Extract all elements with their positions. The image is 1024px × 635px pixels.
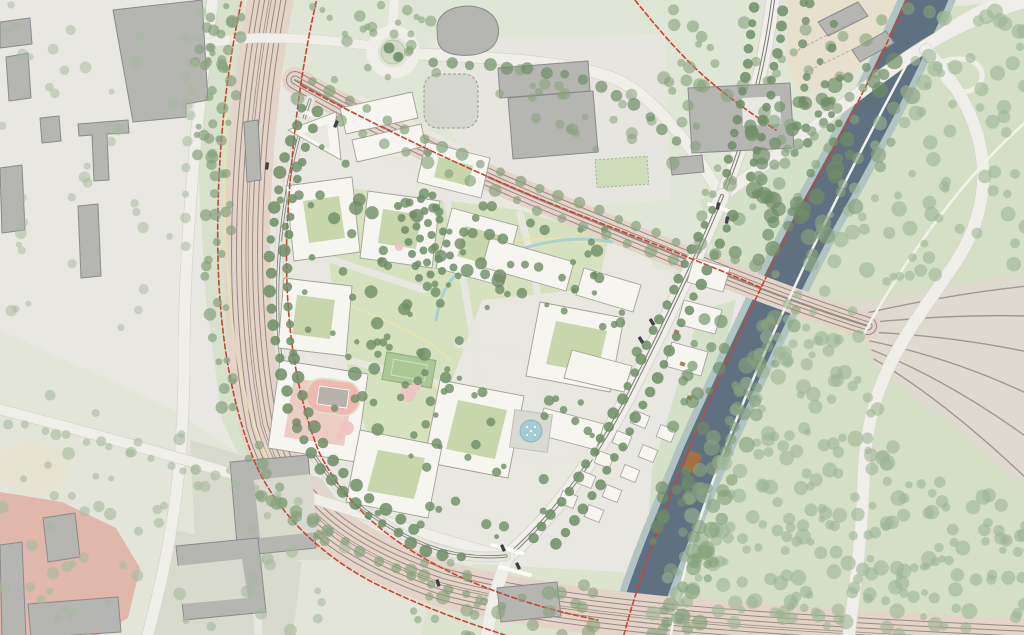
- trees-south-center: [554, 586, 567, 599]
- trees-west-strip: [210, 189, 219, 198]
- trees-south-center: [431, 615, 439, 623]
- tree-grid-park: [417, 195, 425, 203]
- trees-arc-east: [292, 371, 305, 384]
- trees-park-south: [994, 532, 1007, 545]
- trees-top-east: [767, 115, 780, 128]
- trees-top-east: [690, 141, 701, 152]
- trees-boulevard-north-1: [749, 2, 760, 13]
- trees-park-south: [781, 546, 790, 555]
- trees-allee-plaza: [830, 20, 838, 28]
- trees-park-riveredge: [836, 187, 846, 197]
- trees-park-north: [965, 53, 975, 63]
- trees-west-road: [180, 213, 191, 224]
- trees-arc-west: [264, 251, 275, 262]
- trees-central-park: [539, 225, 549, 235]
- trees-west-strip: [210, 171, 221, 182]
- trees-arc-west: [268, 201, 281, 214]
- trees-bridge-road: [859, 84, 868, 93]
- trees-park-south: [798, 422, 810, 434]
- trees-central-park: [558, 274, 566, 282]
- old-building: [244, 120, 261, 182]
- trees-park-south: [999, 547, 1006, 554]
- road-roundabout-north: [392, 0, 395, 30]
- trees-southwest: [179, 467, 186, 474]
- trees-rail-north: [436, 141, 448, 153]
- trees-park-north: [908, 170, 916, 178]
- trees-sw-road: [190, 465, 199, 474]
- trees-west-strip: [256, 458, 268, 470]
- trees-district: [561, 308, 568, 315]
- trees-park-riveredge: [848, 199, 864, 215]
- trees-boulevard-east: [629, 412, 641, 424]
- trees-arc-east: [278, 244, 291, 257]
- trees-park-south: [769, 432, 779, 442]
- trees-sw-road: [274, 491, 281, 498]
- trees-rail-south: [401, 147, 411, 157]
- trees-park-north: [979, 9, 994, 24]
- trees-industrial: [132, 208, 140, 216]
- trees-park-south: [897, 509, 910, 522]
- trees-top-west: [309, 3, 317, 11]
- trees-southwest: [200, 481, 211, 492]
- trees-south-center: [473, 601, 481, 609]
- trees-park-riveredge: [871, 147, 886, 162]
- trees-bank-north: [809, 189, 825, 205]
- trees-central-park: [475, 257, 487, 269]
- trees-park-south: [732, 489, 746, 503]
- trees-boulevard-west: [693, 232, 703, 242]
- trees-top-east: [709, 190, 717, 198]
- trees-park-south: [832, 508, 847, 523]
- trees-bank-north: [845, 150, 855, 160]
- trees-district: [584, 250, 591, 257]
- trees-district: [492, 468, 501, 477]
- trees-bridge-road: [845, 92, 855, 102]
- trees-south-center: [578, 579, 590, 591]
- trees-south-center: [425, 592, 433, 600]
- trees-park-south: [819, 286, 830, 297]
- trees-park-south: [794, 481, 808, 495]
- trees-sw-road: [83, 438, 91, 446]
- trees-district: [408, 453, 413, 458]
- tree-grid-park: [413, 223, 421, 231]
- trees-boulevard-west: [565, 487, 574, 496]
- trees-boulevard-east: [685, 306, 695, 316]
- trees-park-riveredge: [887, 102, 900, 115]
- trees-industrial: [131, 57, 142, 68]
- trees-park-south: [881, 596, 890, 605]
- trees-southwest: [264, 512, 271, 519]
- trees-rail-south: [421, 156, 434, 169]
- trees-bank-north: [752, 189, 761, 198]
- trees-park-north: [1010, 238, 1020, 248]
- trees-park-north: [892, 201, 907, 216]
- trees-park-north: [937, 12, 948, 23]
- trees-bank-north: [886, 53, 903, 70]
- trees-park-north: [845, 225, 860, 240]
- trees-rail-north: [693, 245, 703, 255]
- trees-park-south: [833, 468, 843, 478]
- trees-southwest: [62, 607, 69, 614]
- trees-park-riveredge: [698, 541, 715, 558]
- trees-park-south: [800, 604, 809, 613]
- trees-boulevard-east: [723, 224, 731, 232]
- trees-top-east: [923, 5, 936, 18]
- trees-park-south: [947, 524, 959, 536]
- trees-park-riveredge: [771, 360, 779, 368]
- trees-sw-road: [252, 485, 260, 493]
- trees-boulevard-east: [587, 491, 596, 500]
- trees-boulevard-north-2: [767, 76, 776, 85]
- trees-bank-north: [828, 169, 842, 183]
- trees-park-south: [896, 572, 904, 580]
- trees-park-south: [777, 613, 789, 625]
- trees-park-south: [920, 613, 927, 620]
- trees-south-center: [543, 605, 556, 618]
- trees-rail-north: [476, 160, 485, 169]
- trees-park-south: [794, 290, 803, 299]
- trees-park-riveredge: [787, 319, 800, 332]
- trees-arc-west: [315, 463, 326, 474]
- trees-allee-plaza: [802, 17, 810, 25]
- trees-bank-south: [719, 343, 730, 354]
- trees-park-south: [805, 503, 818, 516]
- trees-arc-east: [318, 438, 329, 449]
- trees-district: [455, 336, 464, 345]
- trees-arc-west: [275, 354, 284, 363]
- trees-southwest: [45, 390, 56, 401]
- trees-park-south: [955, 541, 970, 556]
- trees-park-south: [952, 604, 961, 613]
- trees-park-north: [890, 273, 898, 281]
- trees-district: [305, 326, 312, 333]
- trees-sw-road: [105, 443, 112, 450]
- trees-industrial: [134, 306, 143, 315]
- trees-boulevard-west: [590, 447, 599, 456]
- trees-southwest: [53, 615, 61, 623]
- trees-arc-east: [288, 194, 297, 203]
- trees-park-south: [779, 346, 793, 360]
- trees-factory-edge: [528, 93, 536, 101]
- trees-sw-road: [42, 427, 50, 435]
- trees-bank-south: [672, 485, 682, 495]
- tree-grid-park: [432, 204, 440, 212]
- trees-boulevard-north-2: [762, 103, 771, 112]
- trees-southwest: [37, 595, 46, 604]
- trees-park-south: [848, 431, 864, 447]
- trees-central-park: [339, 267, 348, 276]
- trees-factory-edge: [582, 114, 589, 121]
- trees-park-south: [814, 547, 827, 560]
- trees-boulevard-west: [654, 314, 664, 324]
- trees-factory-edge: [555, 120, 564, 129]
- trees-arc-east: [395, 514, 406, 525]
- trees-district: [539, 474, 549, 484]
- trees-allee-plaza: [799, 96, 807, 104]
- trees-park-south: [986, 575, 996, 585]
- trees-bridge-road: [872, 69, 882, 79]
- trees-park-south: [871, 402, 884, 415]
- trees-industrial: [66, 25, 76, 35]
- trees-district: [468, 228, 478, 238]
- trees-bank-south: [656, 509, 670, 523]
- sports-field-ne: [595, 156, 649, 188]
- trees-west-strip: [223, 304, 230, 311]
- trees-park-south: [850, 492, 860, 502]
- trees-central-park: [386, 344, 393, 351]
- trees-park-south: [865, 567, 878, 580]
- trees-industrial: [181, 99, 193, 111]
- trees-west-road: [196, 7, 206, 17]
- trees-top-east: [728, 176, 737, 185]
- trees-district: [435, 506, 442, 513]
- trees-park-riveredge: [904, 87, 921, 104]
- trees-district: [451, 497, 460, 506]
- trees-boulevard-west: [701, 221, 709, 229]
- sw-u-building-court: [176, 559, 248, 604]
- trees-park-south: [951, 568, 965, 582]
- trees-top-west: [341, 35, 352, 46]
- trees-west-strip: [255, 441, 264, 450]
- trees-bank-north: [787, 207, 796, 216]
- trees-park-riveredge: [693, 463, 707, 477]
- trees-west-strip: [205, 43, 214, 52]
- trees-boulevard-north-1: [748, 19, 756, 27]
- trees-park-south: [802, 324, 810, 332]
- trees-park-south: [864, 448, 878, 462]
- trees-park-south: [759, 520, 768, 529]
- trees-rail-north: [730, 255, 740, 265]
- trees-district: [487, 201, 497, 211]
- trees-rail-south: [358, 129, 367, 138]
- trees-district: [445, 384, 454, 393]
- tree-grid-park: [406, 199, 414, 207]
- trees-boulevard-north-2: [753, 146, 761, 154]
- trees-factory-edge: [495, 90, 503, 98]
- trees-park-north: [916, 107, 926, 117]
- old-building: [78, 204, 101, 278]
- trees-boulevard-west: [581, 459, 590, 468]
- trees-south-center: [517, 593, 526, 602]
- trees-park-south: [899, 493, 910, 504]
- trees-arc-west: [326, 474, 338, 486]
- trees-rail-north: [535, 184, 544, 193]
- trees-top-west: [385, 74, 392, 81]
- trees-park-south: [728, 596, 742, 610]
- trees-district: [416, 348, 425, 357]
- trees-southwest: [47, 567, 60, 580]
- trees-industrial: [84, 163, 91, 170]
- trees-arc-west: [282, 403, 293, 414]
- old-building: [40, 116, 61, 143]
- trees-park-north: [948, 60, 963, 75]
- trees-south-edge: [480, 597, 488, 605]
- trees-bank-north: [795, 201, 811, 217]
- trees-bridge-road: [832, 103, 843, 114]
- trees-central-park: [507, 261, 515, 269]
- trees-district: [494, 534, 499, 539]
- trees-west-strip: [223, 45, 233, 55]
- trees-park-riveredge: [816, 223, 826, 233]
- trees-arc-east: [308, 420, 321, 433]
- trees-park-north: [873, 116, 887, 130]
- trees-southwest: [93, 501, 104, 512]
- trees-west-strip: [227, 373, 238, 384]
- trees-central-park: [459, 227, 469, 237]
- trees-industrial: [68, 193, 76, 201]
- trees-west-strip: [204, 133, 214, 143]
- trees-southwest: [178, 555, 184, 561]
- trees-bank-south: [691, 387, 704, 400]
- trees-southwest: [119, 561, 127, 569]
- trees-district: [342, 160, 350, 168]
- trees-top-west: [342, 31, 348, 37]
- trees-industrial: [106, 137, 116, 147]
- trees-south-center: [414, 616, 422, 624]
- trees-top-west: [418, 16, 425, 23]
- trees-park-south: [881, 521, 891, 531]
- trees-arc-east: [338, 468, 348, 478]
- trees-arc-west: [337, 486, 349, 498]
- trees-boulevard-east: [561, 528, 570, 537]
- trees-west-strip: [204, 308, 217, 321]
- pool-dot: [526, 426, 528, 428]
- trees-rail-south: [314, 108, 322, 116]
- trees-park-south: [781, 531, 792, 542]
- trees-top-east: [811, 160, 820, 169]
- trees-bridge-road: [753, 171, 765, 183]
- trees-industrial: [168, 99, 177, 108]
- trees-rail-north: [456, 148, 469, 161]
- tree-grid-park: [401, 226, 409, 234]
- trees-park-south: [811, 607, 821, 617]
- tree-grid-park: [421, 207, 429, 215]
- trees-sw-road: [62, 430, 71, 439]
- trees-park-south: [818, 516, 825, 523]
- trees-district: [534, 262, 544, 272]
- trees-sw-road: [210, 470, 220, 480]
- tree-grid-park: [416, 235, 424, 243]
- trees-park-riveredge: [703, 560, 712, 569]
- trees-arc-west: [394, 528, 404, 538]
- trees-top-east: [657, 71, 670, 84]
- trees-rail-north: [400, 125, 410, 135]
- trees-industrial: [12, 305, 19, 312]
- trees-arc-east: [301, 143, 310, 152]
- trees-boulevard-east: [578, 504, 589, 515]
- trees-park-riveredge: [717, 484, 730, 497]
- tree-grid-park: [394, 202, 402, 210]
- trees-top-east: [682, 100, 693, 111]
- trees-bridge-road: [793, 138, 804, 149]
- trees-park-north: [1006, 56, 1020, 70]
- trees-central-park: [591, 245, 603, 257]
- trees-boulevard-west: [635, 354, 646, 365]
- trees-south-edge: [497, 602, 506, 611]
- tree-grid-park: [438, 267, 446, 275]
- trees-park-south: [829, 521, 840, 532]
- trees-rail-south: [668, 254, 679, 265]
- trees-park-south: [771, 369, 787, 385]
- gray-pond-plot: [437, 6, 499, 55]
- trees-district: [351, 394, 360, 403]
- trees-boulevard-west: [631, 368, 640, 377]
- trees-park-south: [823, 622, 832, 631]
- trees-north-road: [578, 74, 588, 84]
- trees-bank-north: [760, 190, 773, 203]
- trees-park-south: [695, 574, 703, 582]
- old-building: [43, 513, 80, 562]
- trees-rail-north: [771, 270, 779, 278]
- trees-sw-road: [168, 462, 176, 470]
- trees-park-south: [978, 524, 990, 536]
- trees-boulevard-north-2: [770, 62, 779, 71]
- trees-bank-north: [774, 101, 785, 112]
- trees-park-riveredge: [886, 138, 895, 147]
- trees-park-north: [905, 271, 915, 281]
- trees-bank-north: [840, 132, 855, 147]
- trees-park-north: [974, 82, 988, 96]
- trees-southwest: [79, 552, 89, 562]
- trees-top-east: [677, 117, 688, 128]
- trees-south-center: [542, 586, 556, 600]
- trees-park-north: [882, 277, 891, 286]
- trees-bank-south: [699, 313, 711, 325]
- trees-park-south: [851, 508, 865, 522]
- trees-arc-east: [283, 282, 292, 291]
- trees-park-south: [982, 488, 996, 502]
- trees-west-strip: [216, 401, 229, 414]
- trees-central-park: [472, 214, 480, 222]
- trees-park-south: [928, 617, 943, 632]
- trees-park-south: [981, 537, 990, 546]
- trees-district: [378, 257, 384, 263]
- trees-factory-edge: [531, 113, 541, 123]
- tree-grid-park: [436, 216, 444, 224]
- trees-arc-west: [365, 512, 373, 520]
- trees-west-strip: [222, 66, 229, 73]
- trees-district: [319, 144, 325, 150]
- trees-boulevard-east: [638, 401, 647, 410]
- trees-park-south: [753, 449, 764, 460]
- trees-west-road: [185, 110, 195, 120]
- trees-boulevard-east: [618, 442, 627, 451]
- trees-park-south: [907, 591, 919, 603]
- trees-rail-north: [515, 176, 526, 187]
- trees-park-riveredge: [706, 462, 719, 475]
- trees-park-riveredge: [674, 609, 690, 625]
- trees-district: [446, 229, 452, 235]
- trees-park-south: [944, 556, 954, 566]
- trees-bank-north: [806, 169, 815, 178]
- trees-park-south: [763, 480, 778, 495]
- trees-park-north: [827, 254, 841, 268]
- trees-rail-north: [323, 85, 335, 97]
- trees-west-strip: [226, 225, 236, 235]
- trees-arc-east: [327, 455, 339, 467]
- trees-south-edge: [374, 556, 384, 566]
- trees-west-strip: [208, 333, 217, 342]
- tree-grid-park: [405, 238, 413, 246]
- tree-grid-park: [427, 271, 435, 279]
- trees-park-riveredge: [756, 320, 768, 332]
- trees-sw-road: [294, 497, 303, 506]
- trees-bank-south: [691, 340, 698, 347]
- trees-top-west: [406, 46, 414, 54]
- trees-southwest: [3, 419, 13, 429]
- trees-bank-south: [682, 369, 694, 381]
- trees-park-south: [830, 366, 843, 379]
